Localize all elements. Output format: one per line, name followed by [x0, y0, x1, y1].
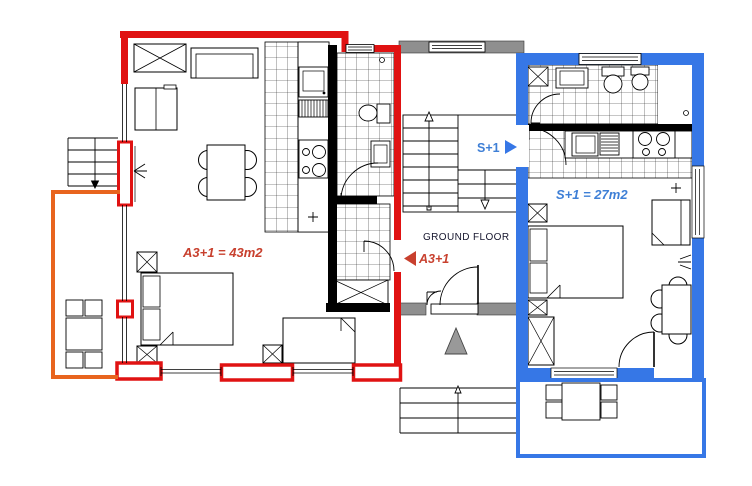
label-s1-pointer: S+1 — [477, 141, 500, 155]
window-a3-north — [346, 45, 374, 53]
door-gap-s1-west — [515, 125, 529, 167]
window-frame-a3-south-2 — [222, 365, 293, 380]
bidet-s1 — [632, 74, 648, 90]
cabinet-a3 — [135, 85, 177, 130]
gray-wall-entrance-left — [399, 303, 426, 315]
double-bed-a3 — [141, 273, 233, 345]
label-ground-floor: GROUND FLOOR — [423, 232, 509, 243]
floor-plan-page: A3+1 = 43m2 A3+1 GROUND FLOOR S+1 S+1 = … — [0, 0, 752, 486]
dishwasher-a3 — [299, 100, 328, 117]
hallway-floor-a3 — [333, 204, 390, 280]
black-wall-s1 — [528, 124, 692, 131]
double-bed-s1 — [528, 226, 623, 298]
central-staircase — [403, 112, 517, 212]
single-bed-a3 — [283, 318, 355, 363]
label-a3-area: A3+1 = 43m2 — [182, 245, 263, 260]
label-s1-area: S+1 = 27m2 — [556, 187, 628, 202]
label-a3-pointer: A3+1 — [418, 252, 449, 266]
window-hall-top — [429, 42, 485, 52]
window-frame-a3-south-3 — [354, 365, 401, 380]
window-frame-a3-south-1 — [117, 363, 161, 379]
door-knob-s1 — [684, 111, 689, 116]
black-wall-kitchen-a3 — [328, 45, 337, 303]
bathroom-floor-a3 — [337, 53, 394, 196]
window-s1-east — [692, 166, 704, 238]
window-frame-a3-west — [119, 142, 132, 205]
gray-wall-entrance-right — [477, 303, 517, 315]
toilet-s1 — [604, 75, 622, 93]
wall-s1-west — [516, 53, 528, 380]
window-post-a3-west — [118, 301, 133, 317]
black-wall-hall-a3 — [326, 303, 390, 312]
entrance-door-sill — [431, 304, 478, 314]
wardrobe-s1 — [652, 200, 690, 245]
toilet-a3 — [359, 105, 377, 121]
door-knob-a3 — [380, 58, 385, 63]
toilet-tank-a3 — [377, 104, 390, 123]
window-s1-north — [579, 54, 641, 65]
sofa-a3 — [191, 48, 258, 78]
black-wall-bath-a3 — [333, 196, 377, 204]
floor-plan-drawing: A3+1 = 43m2 A3+1 GROUND FLOOR S+1 S+1 = … — [0, 0, 752, 486]
wardrobe-x-top-a3 — [134, 44, 186, 72]
